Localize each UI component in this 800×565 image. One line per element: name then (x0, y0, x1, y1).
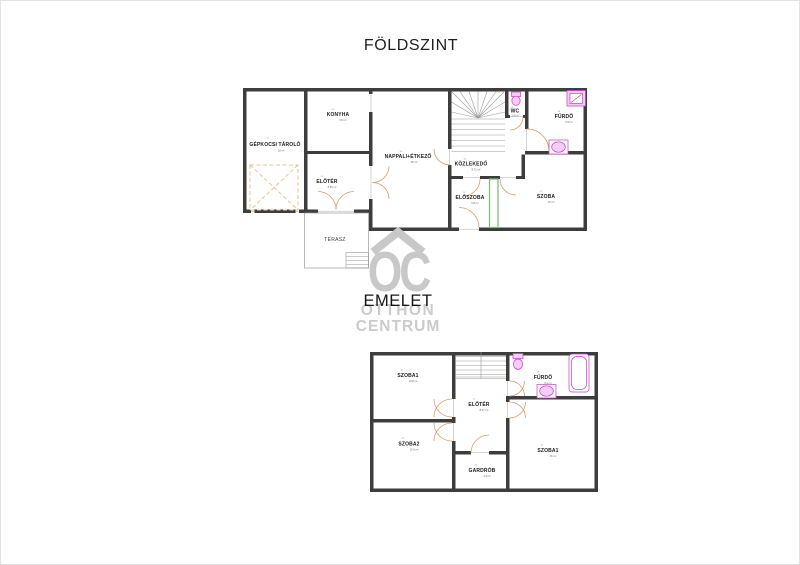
room-label-furdo: FÜRDŐ (555, 113, 574, 120)
upper-opening-sills (454, 381, 508, 453)
upper-walls (370, 352, 598, 492)
room-label-konyha: KONYHA (327, 112, 350, 118)
room-num-eloter-upper: 03 (473, 399, 476, 401)
room-num-szoba1-tl: 01 (401, 370, 404, 372)
room-num-eloszoba: 06 (463, 192, 466, 194)
room-num-szoba: 07 (540, 191, 543, 193)
door-arc-nappali-double-lower (373, 183, 390, 200)
room-num-furdo-upper: 05 (537, 372, 540, 374)
room-area-szoba1-tl: 13.8 m² (409, 379, 418, 383)
room-label-gepkocsi-tarolo: GÉPKOCSI TÁROLÓ (249, 140, 300, 148)
parking-space-dashed (250, 165, 298, 210)
ground-door-arcs (318, 117, 549, 228)
upper-room-labels: 01 SZOBA1 13.8 m² 02 SZOBA2 13.6 m² 03 E… (397, 370, 558, 479)
room-area-eloter: 8.56 m² (328, 185, 337, 189)
room-num-szoba2: 02 (402, 438, 405, 440)
room-area-eloszoba: 5.8 m² (471, 201, 478, 205)
room-area-konyha: 9.5 m² (339, 118, 346, 122)
room-label-szoba2: SZOBA2 (398, 442, 419, 448)
ground-fixtures (512, 91, 586, 155)
room-label-kozlekedo: KÖZLEKEDŐ (455, 161, 488, 168)
toilet-icon (512, 92, 521, 105)
room-num-eloter: 03 (321, 176, 324, 178)
room-num-szoba1-br: 06 (541, 445, 544, 447)
room-label-szoba1-br: SZOBA1 (537, 448, 558, 454)
room-label-gardrob: GARDRÓB (469, 466, 496, 474)
room-label-eloter: ELŐTÉR (316, 177, 337, 185)
room-area-szoba2: 13.6 m² (410, 448, 419, 452)
room-area-szoba: 15 m² (548, 200, 555, 204)
door-arc-wc (510, 117, 523, 130)
bathtub-icon (569, 354, 589, 392)
room-label-wc: WC (511, 109, 520, 115)
watermark-centrum: CENTRUM (338, 318, 458, 336)
room-area-nappali: 30 m² (411, 160, 418, 164)
room-num-wc: 09 (511, 107, 514, 109)
door-arc-nappali-double-upper (373, 166, 390, 183)
room-label-eloszoba: ELŐSZOBA (456, 194, 485, 201)
door-arc-nappali-hall (434, 149, 450, 165)
door-arc-furdo (527, 129, 549, 151)
room-area-szoba1-br: 16 m² (550, 454, 557, 458)
room-num-kozlekedo: 05 (464, 159, 467, 161)
door-arc-szoba (500, 179, 516, 195)
room-label-nappali-etkezo: NAPPALI+ÉTKEZŐ (385, 152, 432, 160)
room-area-furdo: 5.9 m² (565, 120, 572, 124)
ground-stairs (452, 92, 506, 152)
door-arc-gardrob (471, 435, 489, 453)
room-area-gardrob: 4.4 m² (483, 474, 490, 478)
room-num-gardrob: 04 (475, 465, 478, 467)
shower-icon (567, 91, 586, 107)
upper-door-arcs (434, 381, 526, 453)
room-area-wc: 1.5 m² (511, 114, 518, 118)
door-arc-eloszoba (463, 179, 480, 196)
upper-stairs (456, 352, 506, 379)
ground-floor-title: FÖLDSZINT (326, 37, 496, 55)
room-area-kozlekedo: 8.71 m² (472, 168, 481, 172)
room-label-eloter-upper: ELŐTÉR (468, 400, 489, 408)
door-arc-terrace-double-left (318, 192, 336, 210)
room-label-furdo-upper: FÜRDŐ (534, 374, 553, 381)
toilet-icon-upper (513, 354, 523, 370)
upper-floor-plan: 01 SZOBA1 13.8 m² 02 SZOBA2 13.6 m² 03 E… (369, 351, 599, 493)
door-arc-terrace-double-right (336, 192, 354, 210)
upper-floor-title: EMELET (338, 292, 458, 311)
room-num-nappali: 04 (400, 151, 403, 153)
room-label-szoba1-tl: SZOBA1 (397, 373, 418, 379)
ground-opening-sills (251, 94, 527, 229)
room-num-gepkocsi: 01 (267, 138, 270, 140)
washbasin-icon (549, 140, 568, 154)
room-area-gepkocsi: 18 m² (278, 149, 285, 153)
door-arc-front-entrance (459, 208, 479, 228)
upper-fixtures (513, 354, 589, 399)
floor-plan-page: FÖLDSZINT (0, 0, 800, 565)
green-door-panel (490, 179, 499, 228)
room-area-eloter-upper: 8.07 m² (480, 408, 489, 412)
room-label-szoba: SZOBA (537, 194, 555, 200)
ground-walls (243, 88, 587, 231)
washbasin-icon-upper (537, 385, 556, 399)
room-num-konyha: 02 (332, 109, 335, 111)
room-num-furdo: 08 (558, 111, 561, 113)
